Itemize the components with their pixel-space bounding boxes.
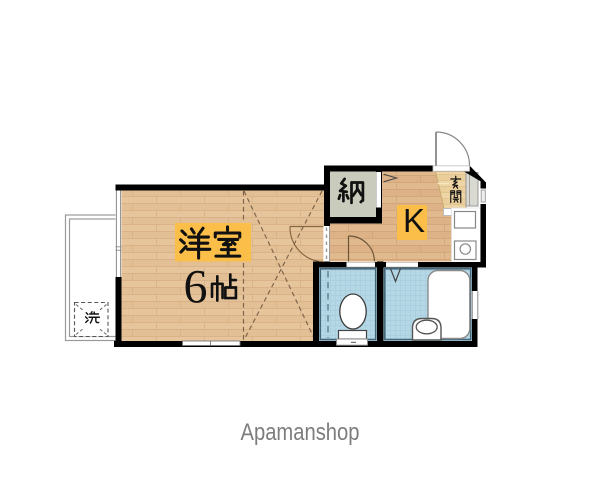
svg-text:Apamanshop: Apamanshop — [241, 419, 360, 446]
svg-text:6: 6 — [184, 261, 208, 314]
svg-text:K: K — [403, 202, 425, 239]
